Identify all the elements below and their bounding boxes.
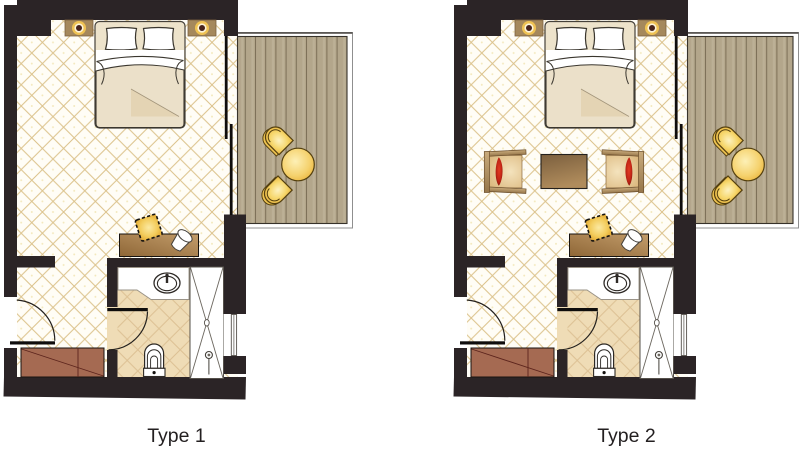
svg-text:Type 2: Type 2 — [597, 425, 656, 447]
svg-text:Type 1: Type 1 — [147, 425, 206, 447]
